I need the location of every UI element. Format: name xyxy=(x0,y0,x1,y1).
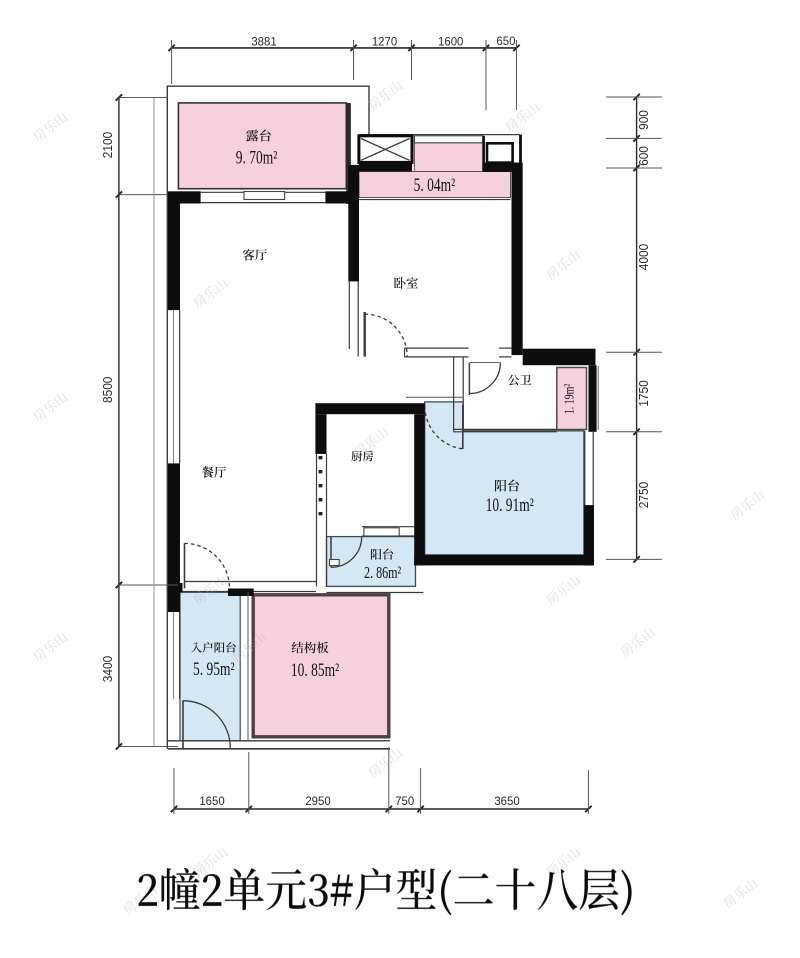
svg-text:650: 650 xyxy=(496,35,515,48)
svg-text:1650: 1650 xyxy=(199,795,225,808)
svg-text:9. 70m²: 9. 70m² xyxy=(236,146,278,168)
svg-text:10. 91m²: 10. 91m² xyxy=(486,494,534,516)
svg-text:2950: 2950 xyxy=(305,795,331,808)
svg-text:3650: 3650 xyxy=(494,795,520,808)
svg-text:4000: 4000 xyxy=(637,244,651,271)
svg-text:2100: 2100 xyxy=(101,132,115,159)
svg-text:3881: 3881 xyxy=(251,35,276,48)
svg-text:750: 750 xyxy=(395,795,414,808)
svg-text:900: 900 xyxy=(637,110,651,130)
svg-text:1600: 1600 xyxy=(438,35,464,48)
svg-text:2750: 2750 xyxy=(637,482,651,509)
svg-text:5. 95m²: 5. 95m² xyxy=(193,658,235,680)
svg-text:1. 19m²: 1. 19m² xyxy=(561,383,577,414)
svg-text:1750: 1750 xyxy=(637,380,651,407)
svg-text:3400: 3400 xyxy=(101,656,115,683)
svg-text:10. 85m²: 10. 85m² xyxy=(291,659,339,681)
svg-text:1270: 1270 xyxy=(372,35,398,48)
svg-text:2. 86m²: 2. 86m² xyxy=(364,564,402,582)
svg-text:8500: 8500 xyxy=(101,376,115,403)
svg-text:600: 600 xyxy=(637,146,651,166)
svg-text:5. 04m²: 5. 04m² xyxy=(414,174,456,196)
